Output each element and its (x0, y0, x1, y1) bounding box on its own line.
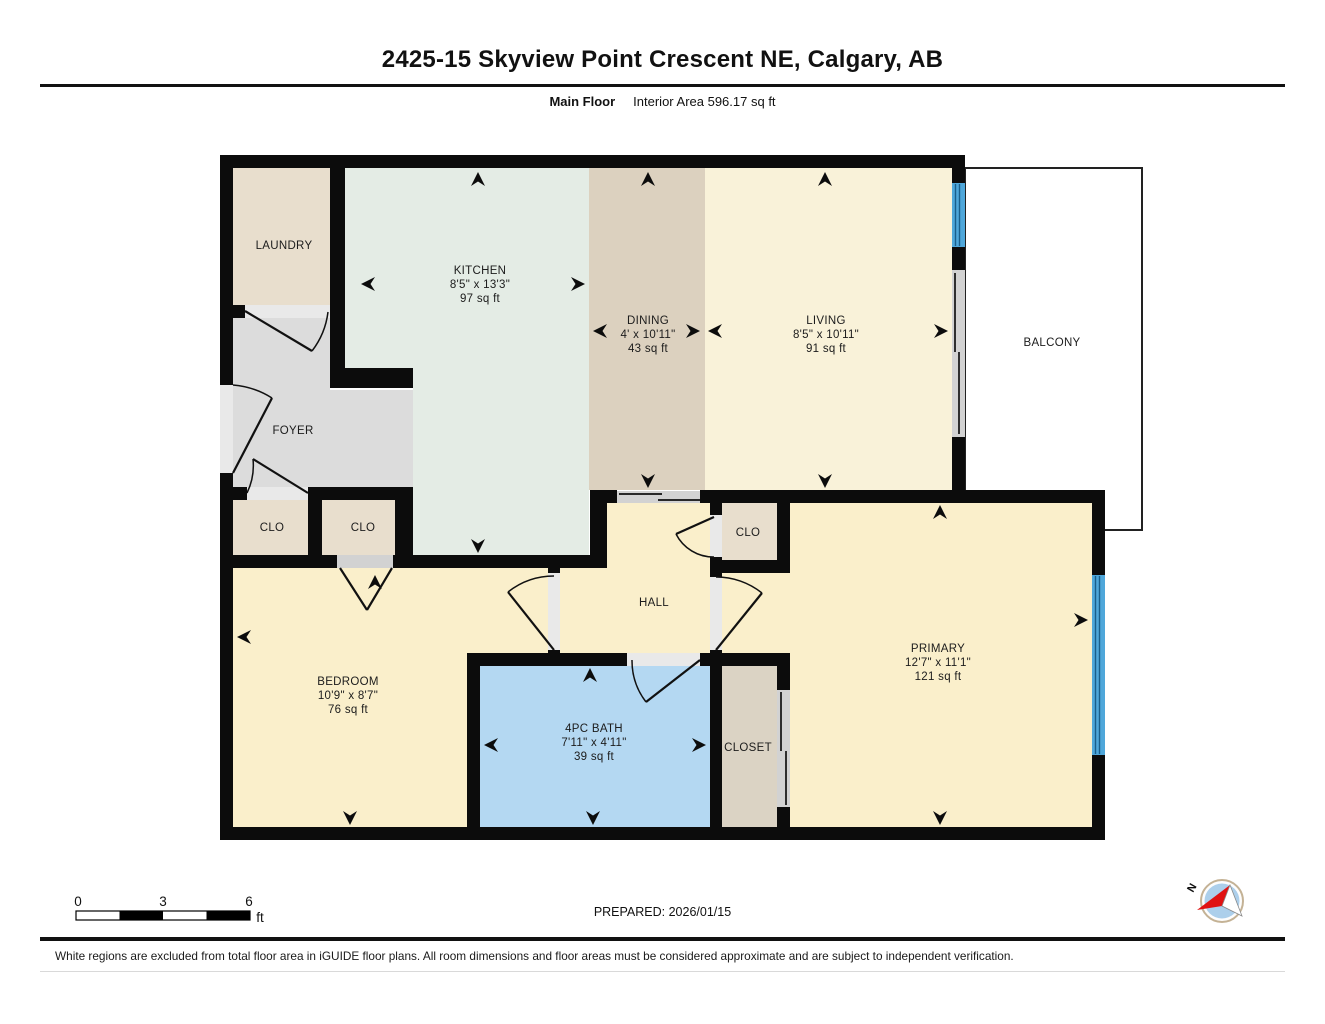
kitchen-sqft: 97 sq ft (460, 293, 501, 305)
primary-door-jamb (710, 577, 722, 650)
floorplan-svg: LAUNDRY KITCHEN 8'5" x 13'3" 97 sq ft DI… (0, 0, 1325, 1024)
bath-sqft: 39 sq ft (574, 751, 615, 763)
living-label: LIVING (806, 315, 846, 327)
hall-extension (560, 568, 607, 666)
clo-bedroom-door (337, 555, 393, 568)
bath-threshold (627, 653, 700, 666)
foyer-label: FOYER (272, 425, 313, 437)
entry-threshold (220, 385, 233, 473)
kitchen-dims: 8'5" x 13'3" (450, 279, 510, 291)
kitchen-label: KITCHEN (454, 265, 507, 277)
bath-label: 4PC BATH (565, 723, 623, 735)
bedroom-vestibule (480, 568, 548, 653)
floorplan-page: 2425-15 Skyview Point Crescent NE, Calga… (0, 0, 1325, 1024)
clo-hall-label: CLO (736, 527, 761, 539)
compass-north-label: N (1185, 882, 1199, 895)
primary-label: PRIMARY (911, 643, 965, 655)
living-dims: 8'5" x 10'11" (793, 329, 859, 341)
laundry-threshold (245, 305, 330, 318)
clo-hall-door-jamb (710, 515, 722, 557)
bath-dims: 7'11" x 4'11" (561, 737, 626, 749)
dining-dims: 4' x 10'11" (620, 329, 675, 341)
dining-hall-slider (617, 491, 700, 503)
clo-bedroom-label: CLO (351, 522, 376, 534)
bedroom-sqft: 76 sq ft (328, 704, 369, 716)
dining-label: DINING (627, 315, 669, 327)
living-sqft: 91 sq ft (806, 343, 847, 355)
disclaimer-text: White regions are excluded from total fl… (55, 949, 1285, 963)
living-window (952, 183, 965, 247)
balcony-label: BALCONY (1023, 337, 1080, 349)
bedroom-dims: 10'9" x 8'7" (318, 690, 378, 702)
hall-area (607, 503, 710, 666)
laundry-label: LAUNDRY (256, 240, 313, 252)
primary-window (1092, 575, 1105, 755)
primary-dims: 12'7" x 11'1" (905, 657, 971, 669)
closet-label: CLOSET (724, 742, 772, 754)
bedroom-label: BEDROOM (317, 676, 379, 688)
clo-foyer-threshold (247, 487, 308, 500)
clo-foyer-label: CLO (260, 522, 285, 534)
hall-label: HALL (639, 597, 669, 609)
bottom-thin-rule (40, 971, 1285, 972)
bedroom-door-jamb (548, 573, 560, 650)
footer-divider (40, 937, 1285, 941)
primary-sqft: 121 sq ft (915, 671, 962, 683)
closet-slider-door (777, 690, 790, 807)
prepared-date: PREPARED: 2026/01/15 (0, 905, 1325, 919)
dining-sqft: 43 sq ft (628, 343, 669, 355)
balcony-area (965, 168, 1142, 530)
